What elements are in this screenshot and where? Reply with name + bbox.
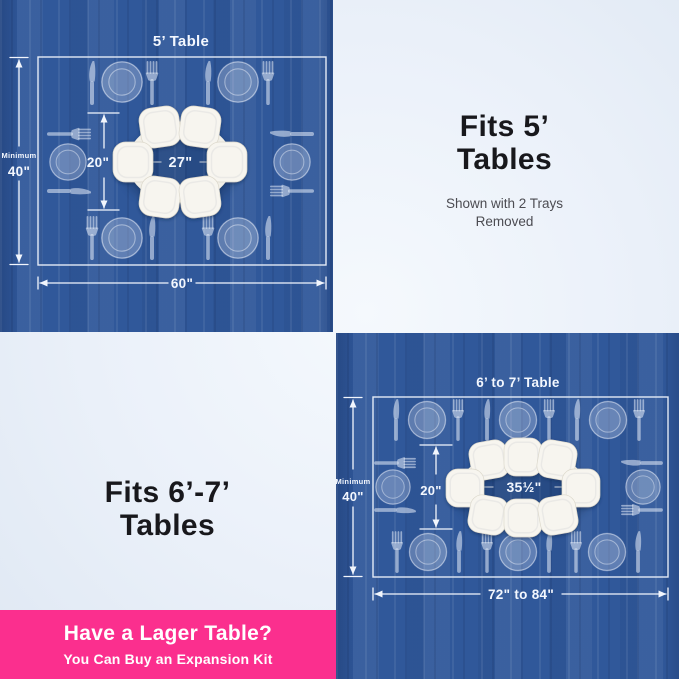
table-depth-dimension	[344, 398, 362, 577]
diagram-title: 5’ Table	[153, 33, 209, 50]
banner-heading: Have a Lager Table?	[0, 610, 336, 646]
knife-icon	[270, 131, 314, 137]
knife-icon	[265, 216, 271, 260]
banner-subtext: You Can Buy an Expansion Kit	[0, 651, 336, 667]
ring-height-value: 20"	[87, 155, 109, 170]
knife-icon	[456, 531, 462, 573]
plate-icon	[217, 217, 259, 259]
depth-value: 40"	[342, 489, 364, 504]
fork-icon	[146, 61, 158, 105]
tray-icon	[466, 493, 510, 537]
fits-5-subtext: Shown with 2 Trays Removed	[337, 195, 672, 230]
tray-icon	[113, 142, 153, 182]
plate-icon	[499, 401, 538, 440]
plate-icon	[589, 401, 628, 440]
depth-value: 40"	[8, 164, 30, 179]
tray-icon	[536, 493, 580, 537]
knife-icon	[546, 531, 552, 573]
knife-icon	[621, 460, 663, 466]
fork-icon	[481, 531, 493, 573]
tray-icon	[207, 142, 247, 182]
fork-icon	[270, 185, 314, 197]
diagram-title: 6’ to 7’ Table	[476, 375, 560, 390]
plate-icon	[49, 143, 87, 181]
minimum-label: Minimum	[1, 151, 36, 160]
tray-icon	[177, 174, 222, 219]
knife-icon	[574, 399, 580, 441]
fits-6-7-heading: Fits 6’-7’ Tables	[0, 476, 335, 542]
plate-icon	[499, 533, 538, 572]
fork-icon	[262, 61, 274, 105]
minimum-label: Minimum	[336, 477, 371, 486]
knife-icon	[393, 399, 399, 441]
fork-icon	[391, 531, 403, 573]
plate-icon	[408, 401, 447, 440]
width-value: 72" to 84"	[488, 587, 554, 602]
fork-icon	[543, 399, 555, 441]
knife-icon	[149, 216, 155, 260]
knife-icon	[89, 61, 95, 105]
plate-icon	[588, 533, 627, 572]
expansion-kit-banner: Have a Lager Table? You Can Buy an Expan…	[0, 610, 336, 679]
tray-icon	[137, 174, 182, 219]
table-depth-dimension	[10, 58, 28, 265]
plate-icon	[101, 61, 143, 103]
tray-icon	[504, 499, 542, 537]
knife-icon	[484, 399, 490, 441]
five-foot-table-diagram: 5’ Table Minimum 40" 60" 20" 27"	[0, 0, 333, 332]
plate-icon	[273, 143, 311, 181]
fits-5-heading: Fits 5’ Tables	[337, 110, 672, 176]
plate-icon	[217, 61, 259, 103]
plate-icon	[375, 469, 411, 505]
six-seven-foot-table-panel: 6’ to 7’ Table Minimum 40" 72" to 84" 20…	[336, 333, 679, 679]
knife-icon	[47, 188, 91, 194]
ring-height-value: 20"	[420, 483, 442, 498]
five-foot-table-panel: 5’ Table Minimum 40" 60" 20" 27"	[0, 0, 333, 332]
plate-icon	[625, 469, 661, 505]
fork-icon	[621, 504, 663, 516]
fork-icon	[570, 531, 582, 573]
ring-width-value: 27"	[169, 155, 193, 171]
fork-icon	[452, 399, 464, 441]
six-seven-foot-table-diagram: 6’ to 7’ Table Minimum 40" 72" to 84" 20…	[336, 333, 679, 679]
knife-icon	[635, 531, 641, 573]
tray-icon	[504, 438, 542, 476]
fork-icon	[47, 128, 91, 140]
fork-icon	[374, 457, 416, 469]
fork-icon	[86, 216, 98, 260]
plate-icon	[409, 533, 448, 572]
knife-icon	[374, 507, 416, 513]
width-value: 60"	[171, 276, 193, 291]
plate-icon	[101, 217, 143, 259]
product-infographic: 5’ Table Minimum 40" 60" 20" 27" Fits 5’…	[0, 0, 679, 679]
fork-icon	[202, 216, 214, 260]
ring-width-value: 35½"	[506, 479, 541, 495]
fork-icon	[633, 399, 645, 441]
knife-icon	[205, 61, 211, 105]
